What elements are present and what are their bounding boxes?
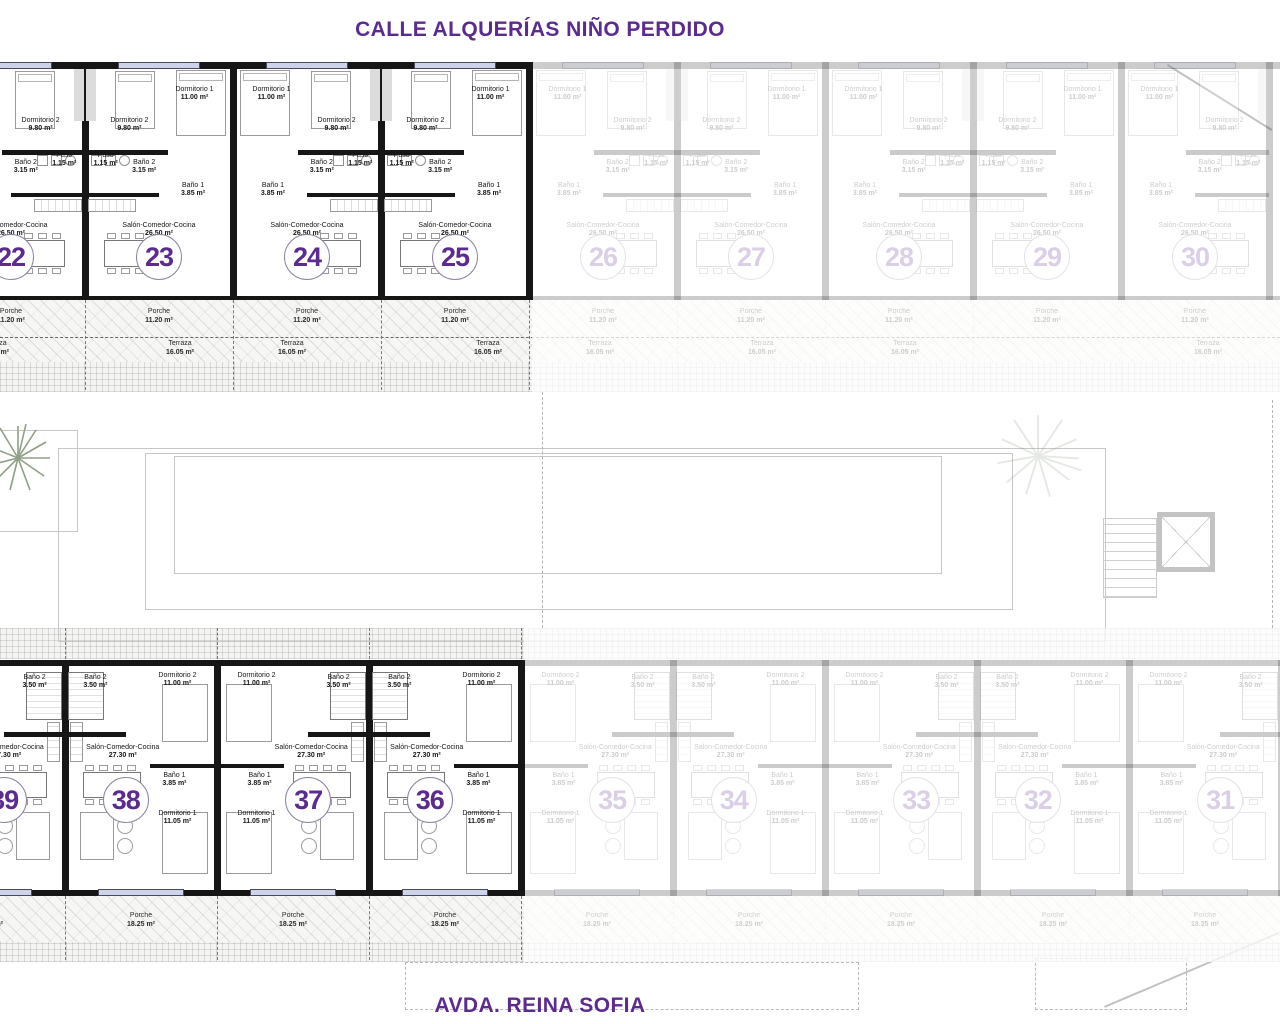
label-dormitorio-1-area: 11.05 m²: [468, 818, 496, 826]
label-bano-2: Baño 23.50 m²: [327, 674, 351, 691]
label-bano-1-area: 3.85 m²: [1074, 780, 1098, 788]
label-porche: Porche18.25 m²: [583, 912, 611, 930]
pillow: [906, 74, 940, 82]
bath-fixture: [37, 155, 48, 166]
fade-overlay: [524, 628, 1280, 659]
interior-wall: [65, 732, 126, 737]
unit-number-circle[interactable]: 35: [589, 777, 635, 823]
label-bano-2: Baño 23.15 m²: [902, 159, 926, 176]
label-bano-1-area: 3.85 m²: [261, 190, 285, 198]
label-bano-2: Baño 23.15 m²: [132, 159, 156, 176]
chair: [644, 268, 653, 274]
label-bano-2-name: Baño 2: [1199, 159, 1221, 167]
unit-number: 22: [0, 242, 25, 273]
label-salon: Salón-Comedor-Cocina27.30 m²: [390, 744, 463, 761]
label-salon-name: Salón-Comedor-Cocina: [0, 222, 48, 230]
interior-wall: [217, 764, 284, 768]
bed-dormitorio2: [1138, 684, 1184, 742]
label-dormitorio-2-area: 11.00 m²: [772, 680, 800, 688]
label-dormitorio-2-area: 9.80 m²: [29, 125, 53, 133]
label-bano-2-name: Baño 2: [1021, 159, 1043, 167]
label-bano-2: Baño 23.15 m²: [310, 159, 334, 176]
chair: [599, 765, 608, 771]
label-salon-name: Salón-Comedor-Cocina: [1187, 744, 1260, 752]
label-salon-area: 27.30 m²: [413, 752, 441, 760]
label-paso-area: 1.15 m²: [94, 160, 118, 168]
interior-wall: [521, 764, 588, 768]
unit-number: 32: [1024, 785, 1052, 816]
chair: [33, 799, 42, 805]
label-porche-name: Porche: [1036, 308, 1058, 317]
label-bano-1-name: Baño 1: [1160, 772, 1182, 780]
label-bano-2: Baño 23.15 m²: [14, 159, 38, 176]
label-dormitorio-1-name: Dormitorio 1: [1140, 86, 1178, 94]
label-dormitorio-1-name: Dormitorio 1: [767, 86, 805, 94]
chair: [1236, 233, 1245, 239]
label-bano-2: Baño 23.50 m²: [691, 674, 715, 691]
label-bano-1-area: 3.85 m²: [466, 780, 490, 788]
bath-fixture: [415, 155, 426, 166]
label-dormitorio-2-name: Dormitorio 2: [1149, 672, 1187, 680]
label-salon: Salón-Comedor-Cocina27.30 m²: [883, 744, 956, 761]
label-paso: Paso1.15 m²: [686, 152, 710, 169]
chair: [403, 233, 412, 239]
chair: [1009, 268, 1018, 274]
label-paso: Paso1.15 m²: [644, 152, 668, 169]
bed-dormitorio1: [240, 70, 290, 136]
label-bano-2: Baño 23.15 m²: [1198, 159, 1222, 176]
unit-number-circle[interactable]: 23: [136, 234, 182, 280]
label-bano-1: Baño 13.85 m²: [773, 182, 797, 199]
label-bano-1-area: 3.85 m²: [247, 780, 271, 788]
label-dormitorio-1-area: 11.05 m²: [1076, 818, 1104, 826]
window-icon: [414, 62, 497, 69]
armchair: [421, 838, 437, 854]
chair: [735, 765, 744, 771]
armchair: [725, 838, 741, 854]
label-dormitorio-1-name: Dormitorio 1: [1149, 810, 1187, 818]
unit-number: 39: [0, 785, 18, 816]
chair: [613, 765, 622, 771]
label-dormitorio-2: Dormitorio 29.80 m²: [22, 117, 60, 134]
unit-26: Dormitorio 111.00 m²Dormitorio 29.80 m²P…: [529, 62, 677, 300]
unit-number-circle[interactable]: 27: [728, 234, 774, 280]
label-salon-area: 27.30 m²: [1021, 752, 1049, 760]
sofa: [1232, 812, 1266, 860]
label-porche-area: 11.20 m²: [885, 317, 913, 326]
pillow: [475, 73, 519, 81]
pillow: [771, 73, 815, 81]
chair: [1011, 765, 1020, 771]
label-dormitorio-1-name: Dormitorio 1: [237, 810, 275, 818]
unit-number-circle[interactable]: 34: [711, 777, 757, 823]
label-salon: Salón-Comedor-Cocina27.30 m²: [579, 744, 652, 761]
label-dormitorio-1-area: 11.00 m²: [1146, 94, 1174, 102]
label-bano-2-area: 3.15 m²: [1020, 167, 1044, 175]
label-terraza-area: 16.05 m²: [474, 349, 502, 358]
label-porche-name: Porche: [738, 912, 760, 921]
label-dormitorio-1-area: 11.00 m²: [258, 94, 286, 102]
bath-fixture: [925, 155, 936, 166]
label-dormitorio-2-area: 9.80 m²: [117, 125, 141, 133]
kitchen-counter: [982, 722, 995, 762]
label-bano-1-name: Baño 1: [248, 772, 270, 780]
label-bano-2-name: Baño 2: [632, 674, 654, 682]
label-terraza: Terraza16.05 m²: [474, 340, 502, 358]
armchair: [117, 838, 133, 854]
label-terraza-name: Terraza: [588, 340, 611, 349]
unit-number-circle[interactable]: 31: [1197, 777, 1243, 823]
bath-fixture: [1221, 155, 1232, 166]
label-dormitorio-2: Dormitorio 211.00 m²: [845, 672, 883, 689]
label-terraza: Terraza16.05 m²: [586, 340, 614, 358]
unit-number: 36: [416, 785, 444, 816]
kitchen-counter: [47, 722, 60, 762]
label-bano-2-area: 3.50 m²: [995, 682, 1019, 690]
label-dormitorio-1: Dormitorio 111.00 m²: [844, 86, 882, 103]
label-dormitorio-1-area: 11.05 m²: [243, 818, 271, 826]
pillow: [118, 74, 152, 82]
chair: [630, 268, 639, 274]
kitchen-counter: [88, 199, 136, 212]
label-salon-name: Salón-Comedor-Cocina: [862, 222, 935, 230]
unit-number: 31: [1206, 785, 1234, 816]
sofa: [384, 812, 418, 860]
window-icon: [858, 889, 943, 896]
label-dormitorio-1-area: 11.00 m²: [1069, 94, 1097, 102]
chair: [107, 233, 116, 239]
pillow: [539, 73, 583, 81]
chair: [1249, 799, 1258, 805]
label-dormitorio-2-area: 9.80 m²: [621, 125, 645, 133]
label-terraza: Terraza16.05 m²: [0, 340, 9, 358]
chair: [389, 799, 398, 805]
unit-number-circle[interactable]: 25: [432, 234, 478, 280]
label-salon-name: Salón-Comedor-Cocina: [1010, 222, 1083, 230]
label-porche-area: 18.25 m²: [583, 921, 611, 930]
sofa: [320, 812, 354, 860]
bed-dormitorio2: [162, 684, 208, 742]
label-dormitorio-2: Dormitorio 211.00 m²: [462, 672, 500, 689]
label-dormitorio-2-name: Dormitorio 2: [845, 672, 883, 680]
label-porche-area: 11.20 m²: [145, 317, 173, 326]
label-dormitorio-2-name: Dormitorio 2: [22, 117, 60, 125]
label-bano-1: Baño 13.85 m²: [1159, 772, 1183, 789]
chair: [85, 799, 94, 805]
label-bano-1-name: Baño 1: [1070, 182, 1092, 190]
label-dormitorio-2-name: Dormitorio 2: [406, 117, 444, 125]
chair: [931, 765, 940, 771]
closet: [86, 69, 96, 121]
label-bano-2: Baño 23.50 m²: [995, 674, 1019, 691]
porche-divider-dashed: [529, 300, 530, 390]
label-porche-name: Porche: [148, 308, 170, 317]
chair: [707, 765, 716, 771]
label-dormitorio-2-name: Dormitorio 2: [1206, 117, 1244, 125]
label-bano-1-name: Baño 1: [262, 182, 284, 190]
chair: [52, 233, 61, 239]
label-dormitorio-2: Dormitorio 29.80 m²: [110, 117, 148, 134]
label-bano-2-area: 3.15 m²: [1198, 167, 1222, 175]
label-paso-area: 1.15 m²: [644, 160, 668, 168]
label-porche-area: 11.20 m²: [441, 317, 469, 326]
label-porche: Porche11.20 m²: [145, 308, 173, 326]
unit-24: Dormitorio 111.00 m²Dormitorio 29.80 m²P…: [233, 62, 381, 300]
walkway-divider-dashed: [65, 628, 66, 659]
unit-number: 24: [293, 242, 321, 273]
label-porche-area: 11.20 m²: [589, 317, 617, 326]
window-icon: [1154, 62, 1237, 69]
unit-37: Baño 23.50 m²Dormitorio 211.00 m²Salón-C…: [217, 660, 369, 896]
label-dormitorio-1: Dormitorio 111.00 m²: [1140, 86, 1178, 103]
label-dormitorio-1: Dormitorio 111.05 m²: [845, 810, 883, 827]
label-dormitorio-1-area: 11.00 m²: [773, 94, 801, 102]
label-dormitorio-1-area: 11.00 m²: [554, 94, 582, 102]
chair: [903, 765, 912, 771]
label-dormitorio-2: Dormitorio 29.80 m²: [702, 117, 740, 134]
label-bano-2-area: 3.15 m²: [606, 167, 630, 175]
porche-divider-dashed: [65, 896, 66, 960]
chair: [19, 765, 28, 771]
label-dormitorio-2: Dormitorio 29.80 m²: [406, 117, 444, 134]
label-dormitorio-2-area: 9.80 m²: [1213, 125, 1237, 133]
label-bano-1-name: Baño 1: [774, 182, 796, 190]
label-porche: Porche11.20 m²: [0, 308, 25, 326]
label-terraza-name: Terraza: [0, 340, 7, 349]
label-bano-2: Baño 23.50 m²: [1239, 674, 1263, 691]
label-paso-area: 1.15 m²: [1236, 160, 1260, 168]
plan-units-layer: Dormitorio 111.00 m²Dormitorio 29.80 m²P…: [0, 0, 1280, 1024]
label-salon: Salón-Comedor-Cocina27.30 m²: [694, 744, 767, 761]
unit-number: 25: [441, 242, 469, 273]
closet: [370, 69, 380, 121]
label-salon-name: Salón-Comedor-Cocina: [694, 744, 767, 752]
label-bano-1-name: Baño 1: [163, 772, 185, 780]
label-paso-name: Paso: [56, 152, 72, 160]
kitchen-counter: [680, 199, 728, 212]
chair: [1222, 268, 1231, 274]
window-icon: [710, 62, 793, 69]
label-salon-name: Salón-Comedor-Cocina: [122, 222, 195, 230]
armchair: [1029, 838, 1045, 854]
label-porche-name: Porche: [1194, 912, 1216, 921]
label-porche-area: 11.20 m²: [0, 317, 25, 326]
label-dormitorio-2-name: Dormitorio 2: [1070, 672, 1108, 680]
label-bano-2: Baño 23.50 m²: [23, 674, 47, 691]
label-dormitorio-2: Dormitorio 29.80 m²: [1206, 117, 1244, 134]
window-icon: [118, 62, 201, 69]
interior-wall: [150, 764, 217, 768]
label-paso-area: 1.15 m²: [348, 160, 372, 168]
chair: [121, 268, 130, 274]
bed-dormitorio1: [1064, 70, 1114, 136]
label-bano-1-name: Baño 1: [771, 772, 793, 780]
kitchen-counter: [374, 722, 387, 762]
label-dormitorio-2-name: Dormitorio 2: [318, 117, 356, 125]
chair: [1221, 765, 1230, 771]
closet: [666, 69, 676, 121]
chair: [389, 765, 398, 771]
label-salon-name: Salón-Comedor-Cocina: [579, 744, 652, 752]
label-dormitorio-1-name: Dormitorio 1: [462, 810, 500, 818]
interior-wall: [85, 193, 159, 197]
label-dormitorio-1: Dormitorio 111.05 m²: [462, 810, 500, 827]
chair: [1236, 268, 1245, 274]
chair: [38, 268, 47, 274]
chair: [403, 268, 412, 274]
label-dormitorio-1: Dormitorio 111.00 m²: [252, 86, 290, 103]
label-porche: Porche18.25 m²: [1039, 912, 1067, 930]
label-bano-2-name: Baño 2: [936, 674, 958, 682]
label-bano-1: Baño 13.85 m²: [477, 182, 501, 199]
sofa: [16, 812, 50, 860]
unit-number-circle[interactable]: 32: [1015, 777, 1061, 823]
unit-number-circle[interactable]: 29: [1024, 234, 1070, 280]
label-bano-2-name: Baño 2: [903, 159, 925, 167]
kitchen-counter: [626, 199, 674, 212]
pillow: [1131, 73, 1175, 81]
label-dormitorio-1-name: Dormitorio 1: [471, 86, 509, 94]
unit-22: Dormitorio 111.00 m²Dormitorio 29.80 m²P…: [0, 62, 85, 300]
porche-divider-dashed: [521, 896, 522, 960]
unit-number-circle[interactable]: 33: [893, 777, 939, 823]
unit-number: 33: [902, 785, 930, 816]
label-dormitorio-2: Dormitorio 29.80 m²: [318, 117, 356, 134]
walkway-divider-dashed: [369, 628, 370, 659]
chair: [693, 799, 702, 805]
label-bano-2-area: 3.50 m²: [327, 682, 351, 690]
unit-number: 27: [737, 242, 765, 273]
label-terraza-name: Terraza: [168, 340, 191, 349]
label-bano-1: Baño 13.85 m²: [1149, 182, 1173, 199]
label-terraza: Terraza16.05 m²: [278, 340, 306, 358]
label-dormitorio-2-area: 11.00 m²: [1155, 680, 1183, 688]
label-bano-1-name: Baño 1: [552, 772, 574, 780]
closet: [974, 69, 984, 121]
chair: [99, 765, 108, 771]
label-paso: Paso1.15 m²: [982, 152, 1006, 169]
label-porche-area: 18.25 m²: [279, 921, 307, 930]
interior-wall: [1062, 764, 1129, 768]
label-porche: Porche11.20 m²: [885, 308, 913, 326]
sofa: [992, 812, 1026, 860]
label-bano-1-area: 3.85 m²: [855, 780, 879, 788]
chair: [403, 765, 412, 771]
unit-31: Baño 23.50 m²Dormitorio 211.00 m²Salón-C…: [1129, 660, 1280, 896]
label-salon-name: Salón-Comedor-Cocina: [714, 222, 787, 230]
label-salon-area: 27.30 m²: [905, 752, 933, 760]
unit-number-circle[interactable]: 30: [1172, 234, 1218, 280]
unit-number-circle[interactable]: 28: [876, 234, 922, 280]
street-title-bottom: AVDA. REINA SOFIA: [0, 994, 1080, 1018]
label-bano-1: Baño 13.85 m²: [247, 772, 271, 789]
label-dormitorio-1-area: 11.05 m²: [164, 818, 192, 826]
porche-divider-dashed: [217, 896, 218, 960]
label-paso-name: Paso: [648, 152, 664, 160]
label-paso-name: Paso: [394, 152, 410, 160]
label-paso-name: Paso: [1240, 152, 1256, 160]
label-porche-area: 18.25 m²: [887, 921, 915, 930]
label-terraza-name: Terraza: [750, 340, 773, 349]
label-paso-name: Paso: [944, 152, 960, 160]
chair: [713, 268, 722, 274]
pillow: [710, 74, 744, 82]
chair: [85, 765, 94, 771]
chair: [295, 765, 304, 771]
unit-number-circle[interactable]: 36: [407, 777, 453, 823]
label-porche-area: 18.25 m²: [127, 921, 155, 930]
bed-dormitorio1: [768, 70, 818, 136]
label-porche: Porche11.20 m²: [1033, 308, 1061, 326]
chair: [699, 233, 708, 239]
window-icon: [1162, 889, 1247, 896]
label-bano-1: Baño 13.85 m²: [466, 772, 490, 789]
interior-wall: [1220, 732, 1280, 737]
label-bano-2-name: Baño 2: [429, 159, 451, 167]
label-bano-1: Baño 13.85 m²: [162, 772, 186, 789]
unit-34: Baño 23.50 m²Dormitorio 211.00 m²Salón-C…: [673, 660, 825, 896]
label-dormitorio-1: Dormitorio 111.05 m²: [541, 810, 579, 827]
label-dormitorio-1: Dormitorio 111.05 m²: [1149, 810, 1187, 827]
label-terraza-name: Terraza: [280, 340, 303, 349]
interior-wall: [381, 193, 455, 197]
label-paso-area: 1.15 m²: [686, 160, 710, 168]
label-bano-2-name: Baño 2: [996, 674, 1018, 682]
label-dormitorio-1-area: 11.00 m²: [181, 94, 209, 102]
unit-number-circle[interactable]: 37: [285, 777, 331, 823]
chair: [417, 765, 426, 771]
label-porche: Porche11.20 m²: [589, 308, 617, 326]
label-paso: Paso1.15 m²: [348, 152, 372, 169]
unit-number-circle[interactable]: 24: [284, 234, 330, 280]
interior-wall: [369, 732, 430, 737]
label-bano-1-name: Baño 1: [558, 182, 580, 190]
label-porche: Porche18.25 m²: [1191, 912, 1219, 930]
chair: [644, 233, 653, 239]
sofa: [80, 812, 114, 860]
kitchen-counter: [678, 722, 691, 762]
label-dormitorio-2-name: Dormitorio 2: [998, 117, 1036, 125]
label-bano-1-name: Baño 1: [856, 772, 878, 780]
label-bano-1-area: 3.85 m²: [557, 190, 581, 198]
label-terraza-area: 16.05 m²: [586, 349, 614, 358]
unit-number-circle[interactable]: 26: [580, 234, 626, 280]
label-dormitorio-2: Dormitorio 29.80 m²: [910, 117, 948, 134]
chair: [641, 765, 650, 771]
chair: [997, 765, 1006, 771]
label-bano-2-area: 3.15 m²: [902, 167, 926, 175]
label-porche-name: Porche: [296, 308, 318, 317]
label-bano-1-area: 3.85 m²: [162, 780, 186, 788]
bed-dormitorio1: [176, 70, 226, 136]
pillow: [18, 74, 52, 82]
unit-number-circle[interactable]: 38: [103, 777, 149, 823]
label-dormitorio-1: Dormitorio 111.00 m²: [767, 86, 805, 103]
interior-wall: [677, 193, 751, 197]
window-icon: [402, 889, 487, 896]
window-icon: [1006, 62, 1089, 69]
label-bano-1-name: Baño 1: [182, 182, 204, 190]
label-dormitorio-2-name: Dormitorio 2: [110, 117, 148, 125]
label-bano-1-name: Baño 1: [1150, 182, 1172, 190]
label-porche-name: Porche: [890, 912, 912, 921]
chair: [348, 233, 357, 239]
interior-wall: [916, 732, 977, 737]
label-porche-area: 18.25 m²: [0, 921, 3, 930]
label-dormitorio-2-name: Dormitorio 2: [614, 117, 652, 125]
label-porche: Porche18.25 m²: [887, 912, 915, 930]
label-bano-2-area: 3.50 m²: [83, 682, 107, 690]
